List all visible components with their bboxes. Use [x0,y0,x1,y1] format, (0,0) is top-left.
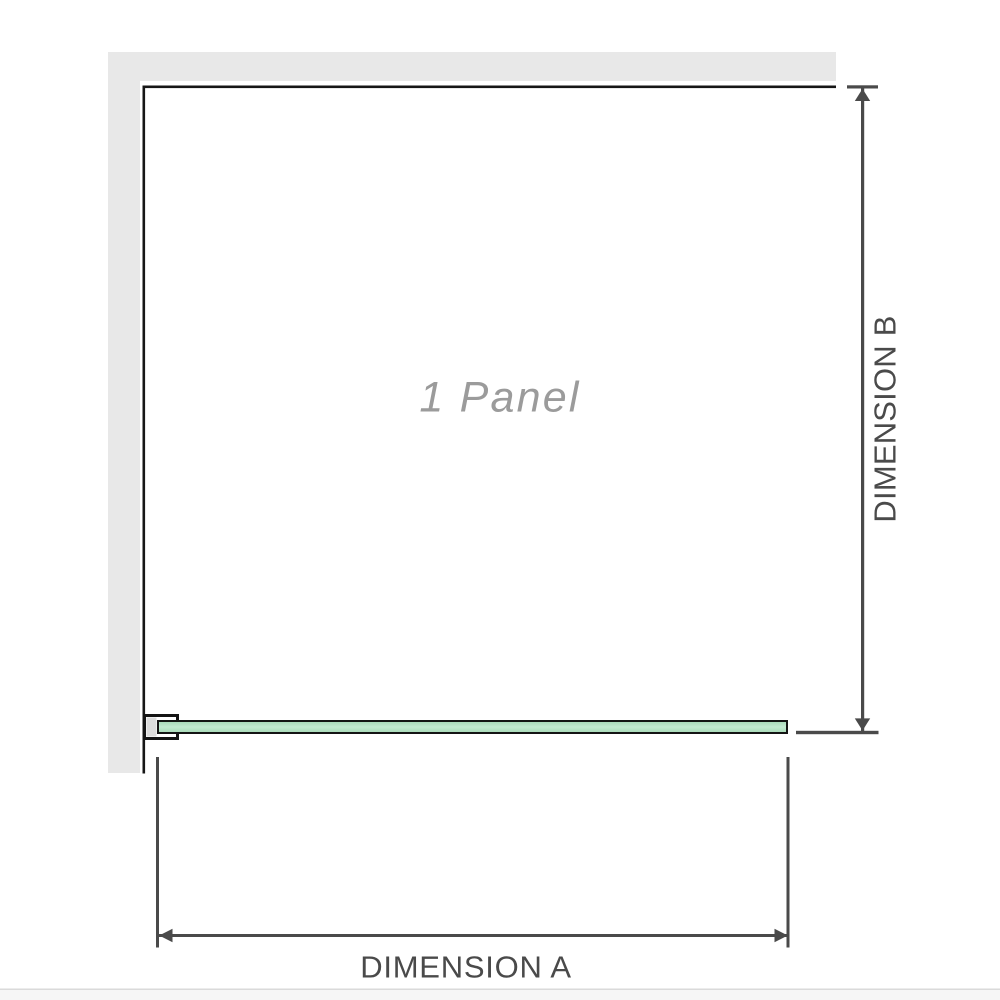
svg-text:1 Panel: 1 Panel [419,374,580,422]
svg-text:DIMENSION B: DIMENSION B [868,315,903,522]
svg-text:DIMENSION A: DIMENSION A [360,950,572,985]
